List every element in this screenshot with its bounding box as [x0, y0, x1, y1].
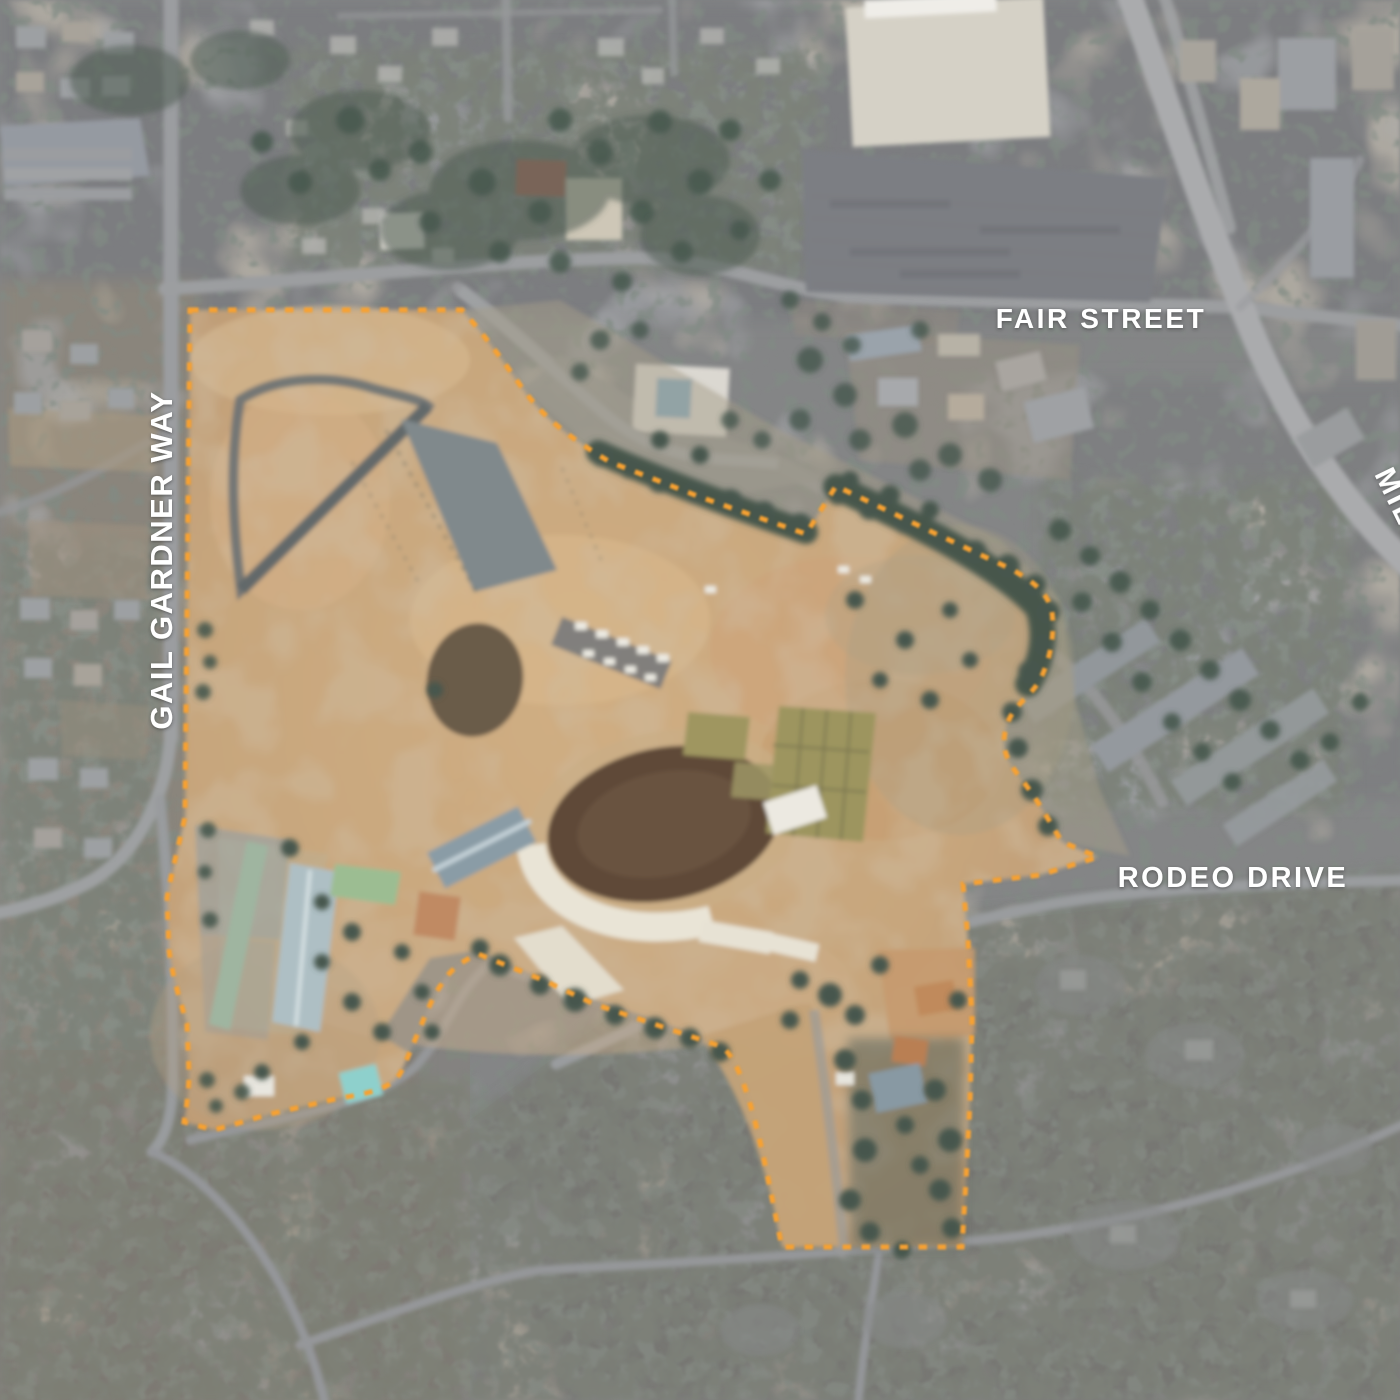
svg-text:RODEO DRIVE: RODEO DRIVE: [1118, 862, 1349, 894]
svg-text:GAIL GARDNER WAY: GAIL GARDNER WAY: [144, 390, 179, 729]
svg-text:FAIR STREET: FAIR STREET: [996, 303, 1207, 334]
